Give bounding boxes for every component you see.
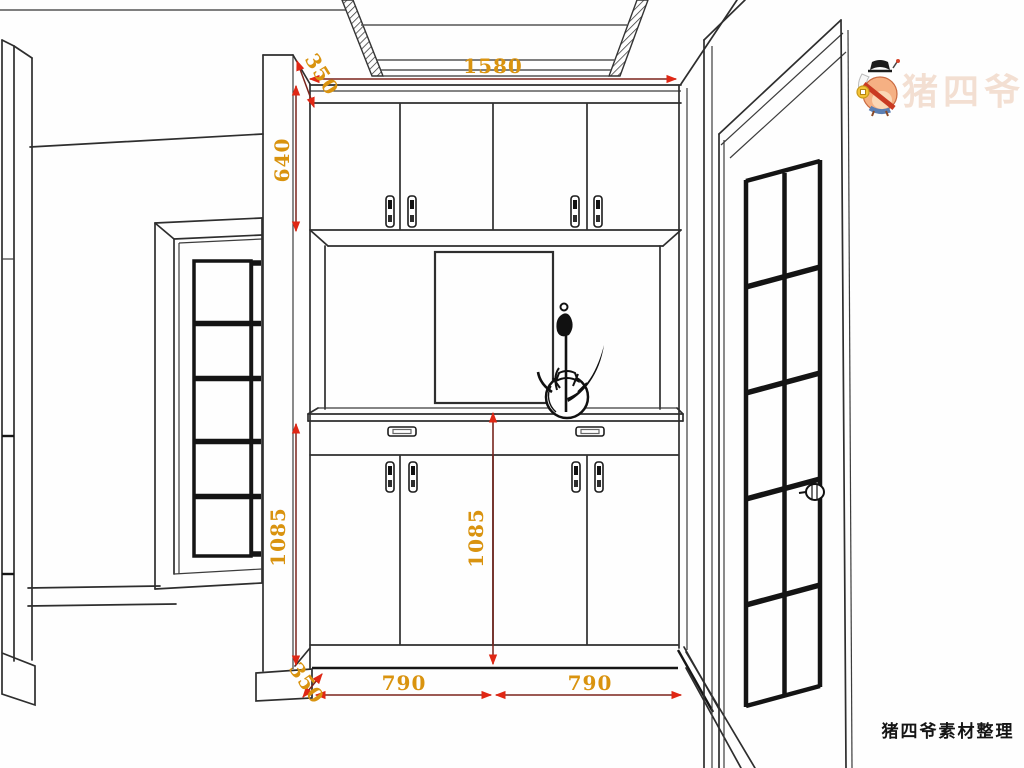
cad-screenshot: 1580 350 640 1085 1085 790 790 350 xyxy=(0,0,1024,768)
ceiling-beam-left xyxy=(342,0,383,76)
watermark: 猪四爷 猪四爷素材整理 xyxy=(857,59,1024,742)
drawer-handle xyxy=(576,427,604,436)
left-door-glass xyxy=(194,261,251,556)
dimension-center-lower-height: 1085 xyxy=(464,413,493,664)
lower-door-handle xyxy=(572,462,580,492)
dim-label-bottom-left-width: 790 xyxy=(382,671,427,695)
upper-door-handle xyxy=(386,196,394,227)
dimension-bottom-depth: 350 xyxy=(284,658,329,708)
dimension-upper-height: 640 xyxy=(270,86,296,231)
flower-vase xyxy=(538,304,604,419)
dim-label-top-depth: 350 xyxy=(300,49,344,100)
mirror xyxy=(435,252,553,403)
dimension-bottom-right-width: 790 xyxy=(496,671,681,695)
ceiling-beam-right xyxy=(609,0,648,76)
pig-mascot-icon xyxy=(857,59,900,116)
dim-label-bottom-depth: 350 xyxy=(284,658,329,708)
dim-label-top-width: 1580 xyxy=(463,54,523,78)
dimensions: 1580 350 640 1085 1085 790 790 350 xyxy=(266,49,681,708)
credit-text: 猪四爷素材整理 xyxy=(882,721,1015,742)
left-door xyxy=(155,218,262,589)
dimension-top-depth: 350 xyxy=(297,49,344,107)
watermark-faint-text: 猪四爷 xyxy=(902,71,1024,113)
upper-door-handle xyxy=(571,196,579,227)
lower-door-handle xyxy=(409,462,417,492)
dimension-left-lower-height: 1085 xyxy=(266,424,296,665)
dim-label-bottom-right-width: 790 xyxy=(568,671,613,695)
dim-label-left-lower-height: 1085 xyxy=(266,507,290,567)
upper-cabinet xyxy=(310,84,687,668)
upper-door-handle xyxy=(594,196,602,227)
entry-cabinet xyxy=(295,84,719,712)
dim-label-upper-height: 640 xyxy=(270,138,294,183)
lower-cabinet xyxy=(295,422,719,712)
dim-label-center-lower-height: 1085 xyxy=(464,508,488,568)
lower-door-handle xyxy=(595,462,603,492)
drawer-handle xyxy=(388,427,416,436)
left-wall xyxy=(2,40,263,705)
lower-door-handle xyxy=(386,462,394,492)
right-door xyxy=(686,20,852,768)
dimension-bottom-left-width: 790 xyxy=(316,671,491,695)
left-wall-base xyxy=(2,653,35,705)
ceiling xyxy=(0,0,745,84)
upper-door-handle xyxy=(408,196,416,227)
elevation-drawing: 1580 350 640 1085 1085 790 790 350 xyxy=(0,0,1024,768)
countertop xyxy=(308,408,683,421)
back-panel xyxy=(325,246,660,409)
